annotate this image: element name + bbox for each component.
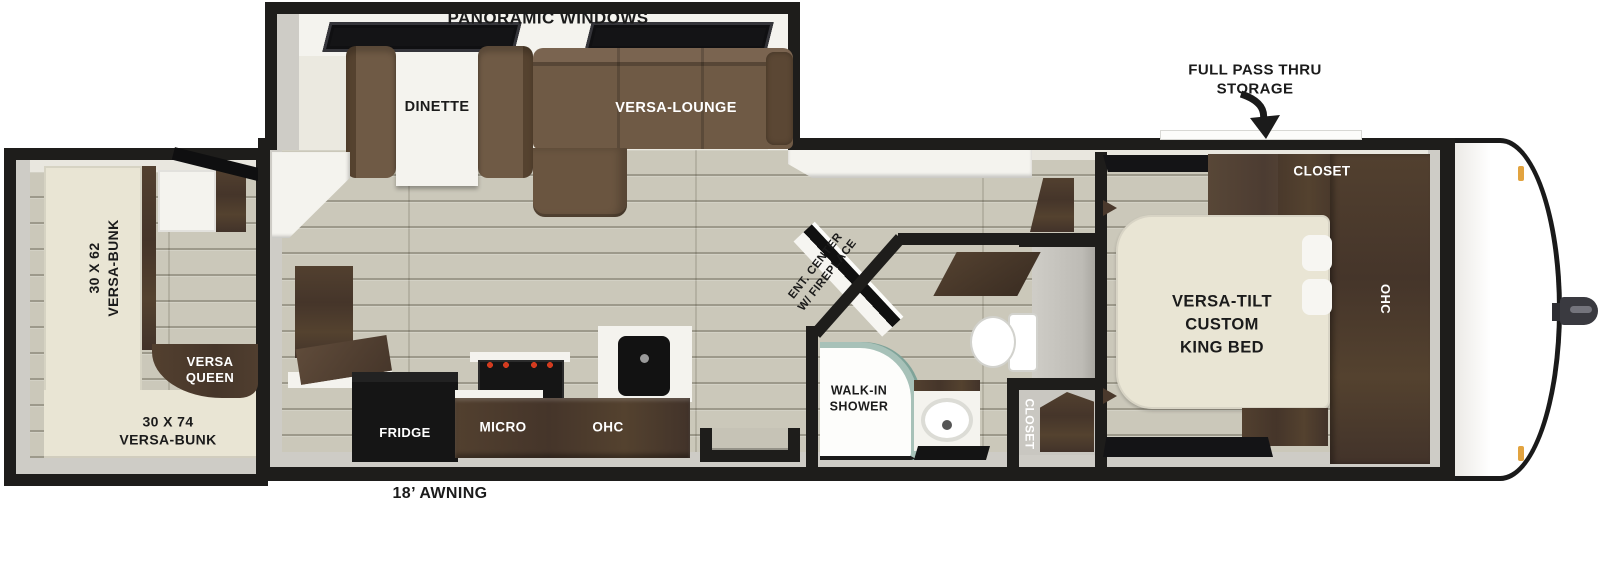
rear-bunk-label: 30 X 74 VERSA-BUNK bbox=[119, 414, 216, 449]
bath-closet-label: CLOSET bbox=[1022, 398, 1037, 449]
bath-closet-wall-left bbox=[1007, 378, 1019, 467]
bedroom-closet-label: CLOSET bbox=[1293, 164, 1350, 181]
dinette-bench-left bbox=[346, 46, 396, 178]
kitchen-faucet bbox=[640, 354, 649, 363]
awning-label: 18’ AWNING bbox=[393, 484, 488, 504]
bedroom-ohc-label: OHC bbox=[1377, 284, 1393, 314]
side-bunk-label: 30 X 62 VERSA-BUNK bbox=[85, 219, 123, 316]
king-bed-label: VERSA-TILT CUSTOM KING BED bbox=[1172, 290, 1272, 359]
sink-vanity-top bbox=[914, 380, 980, 391]
bedroom-wall bbox=[1095, 152, 1107, 467]
bathroom-wardrobe bbox=[1032, 247, 1095, 383]
bunkroom-cabinet bbox=[158, 170, 216, 232]
bathroom-sink-drain bbox=[942, 420, 952, 430]
marker-light-top bbox=[1518, 166, 1524, 181]
hallway-counter bbox=[788, 150, 1032, 178]
sink-mat bbox=[914, 446, 990, 460]
hitch-coupler-slot bbox=[1570, 306, 1592, 313]
panoramic-windows-label: PANORAMIC WINDOWS bbox=[447, 7, 648, 28]
dinette-bench-right bbox=[478, 46, 533, 178]
fridge bbox=[352, 372, 458, 462]
dinette-label: DINETTE bbox=[405, 98, 470, 116]
entry-step-inner bbox=[712, 428, 788, 450]
marker-light-bottom bbox=[1518, 446, 1524, 461]
nook-wall-bottom bbox=[1019, 235, 1107, 247]
bedroom-window-bottom bbox=[1103, 437, 1273, 457]
walk-in-shower-label: WALK-IN SHOWER bbox=[830, 383, 889, 414]
kitchen-sink bbox=[618, 336, 670, 396]
bunkroom-wardrobe bbox=[216, 170, 246, 232]
arrow-down-icon bbox=[1225, 90, 1305, 142]
bunkroom-wall-face-left bbox=[16, 160, 30, 474]
bunkroom-wall-face-bottom bbox=[16, 458, 256, 474]
bath-closet-wall-top bbox=[1007, 378, 1107, 390]
bathroom-wall-left bbox=[806, 326, 818, 467]
fridge-label: FRIDGE bbox=[379, 425, 431, 441]
toilet-bowl bbox=[970, 316, 1016, 368]
versa-lounge-label: VERSA-LOUNGE bbox=[615, 99, 737, 117]
versa-lounge-armrest bbox=[766, 52, 793, 145]
bunk-trim bbox=[142, 166, 156, 350]
pillow-nook-bottom bbox=[1302, 279, 1332, 315]
front-cap bbox=[1455, 138, 1562, 481]
versa-queen-label: VERSA QUEEN bbox=[186, 354, 234, 387]
micro-label: MICRO bbox=[480, 420, 527, 437]
kitchen-ohc-label: OHC bbox=[592, 420, 623, 437]
slideout-wall-face-left bbox=[277, 14, 299, 152]
floorplan: PANORAMIC WINDOWS FULL PASS THRU STORAGE… bbox=[0, 0, 1600, 587]
dinette-table bbox=[396, 52, 478, 186]
pillow-nook-top bbox=[1302, 235, 1332, 271]
versa-lounge-chaise bbox=[533, 148, 627, 217]
